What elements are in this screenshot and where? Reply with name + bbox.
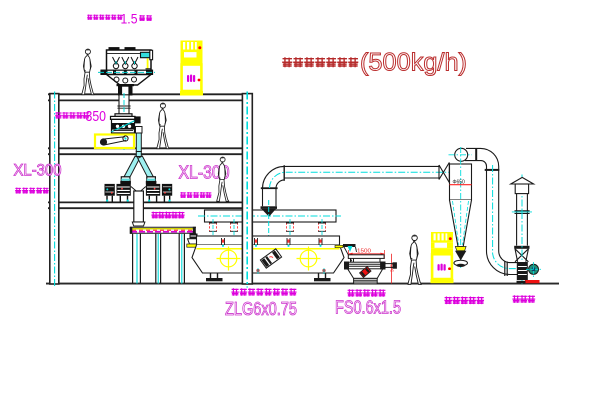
svg-text:ZLG6x0.75: ZLG6x0.75 <box>225 299 297 319</box>
svg-text:(500kg/h): (500kg/h) <box>360 49 467 77</box>
svg-text:XL-300: XL-300 <box>14 161 62 180</box>
svg-text:1.5: 1.5 <box>121 12 138 27</box>
svg-text:350: 350 <box>86 109 107 125</box>
svg-text:Φ650: Φ650 <box>453 180 466 186</box>
svg-text:FS0.6x1.5: FS0.6x1.5 <box>335 298 401 318</box>
